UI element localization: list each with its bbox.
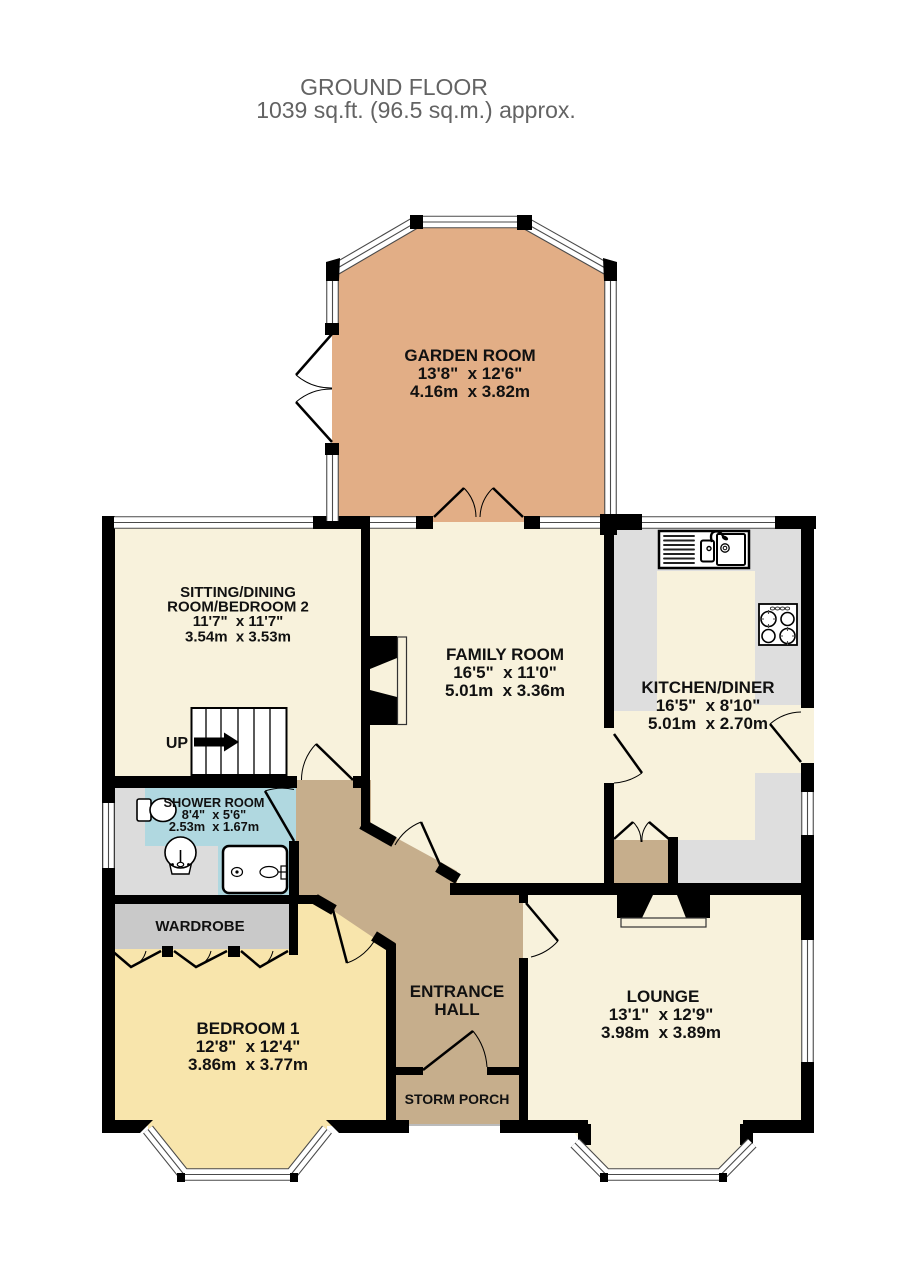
svg-text:LOUNGE: LOUNGE	[627, 987, 700, 1006]
svg-text:HALL: HALL	[434, 1000, 479, 1019]
svg-text:13'1" x 12'9": 13'1" x 12'9"	[609, 1005, 714, 1024]
svg-text:1039 sq.ft. (96.5 sq.m.) appro: 1039 sq.ft. (96.5 sq.m.) approx.	[256, 97, 576, 123]
svg-text:2.53m x 1.67m: 2.53m x 1.67m	[169, 819, 259, 834]
svg-text:12'8" x 12'4": 12'8" x 12'4"	[196, 1037, 301, 1056]
svg-text:16'5" x 11'0": 16'5" x 11'0"	[453, 663, 557, 682]
svg-text:5.01m x 3.36m: 5.01m x 3.36m	[445, 681, 565, 700]
svg-text:BEDROOM 1: BEDROOM 1	[197, 1019, 300, 1038]
svg-text:13'8" x 12'6": 13'8" x 12'6"	[418, 364, 523, 383]
svg-text:11'7" x 11'7": 11'7" x 11'7"	[193, 613, 284, 630]
svg-text:4.16m x 3.82m: 4.16m x 3.82m	[410, 382, 530, 401]
svg-text:KITCHEN/DINER: KITCHEN/DINER	[641, 678, 774, 697]
svg-text:STORM PORCH: STORM PORCH	[405, 1091, 510, 1107]
svg-text:UP: UP	[166, 735, 189, 752]
svg-text:FAMILY ROOM: FAMILY ROOM	[446, 645, 564, 664]
svg-text:3.98m x 3.89m: 3.98m x 3.89m	[601, 1023, 721, 1042]
svg-text:GARDEN ROOM: GARDEN ROOM	[404, 346, 535, 365]
svg-text:3.54m x 3.53m: 3.54m x 3.53m	[185, 629, 291, 646]
svg-text:16'5" x 8'10": 16'5" x 8'10"	[656, 696, 761, 715]
svg-text:WARDROBE: WARDROBE	[155, 918, 244, 935]
svg-text:5.01m x 2.70m: 5.01m x 2.70m	[648, 714, 768, 733]
svg-text:3.86m x 3.77m: 3.86m x 3.77m	[188, 1055, 308, 1074]
svg-text:ENTRANCE: ENTRANCE	[410, 982, 504, 1001]
